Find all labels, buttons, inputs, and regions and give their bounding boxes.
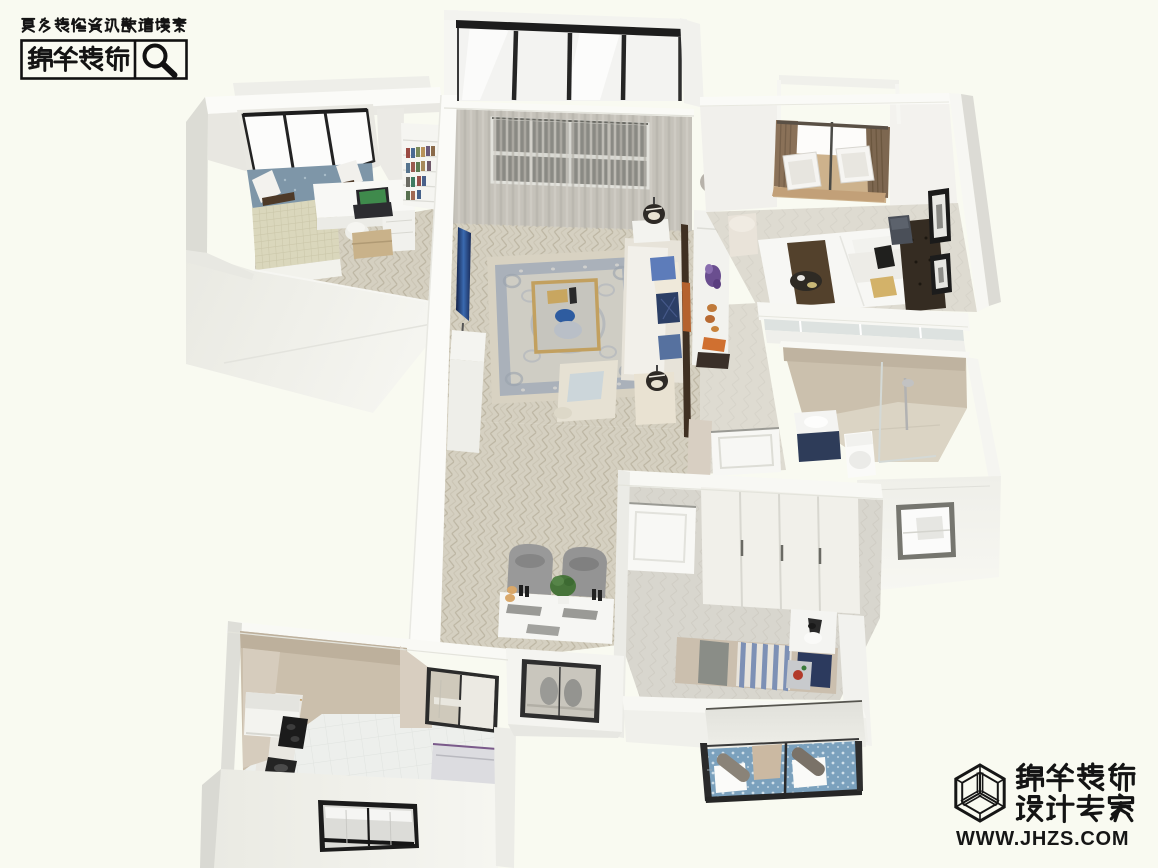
svg-text:WWW.JHZS.COM: WWW.JHZS.COM <box>956 828 1130 850</box>
